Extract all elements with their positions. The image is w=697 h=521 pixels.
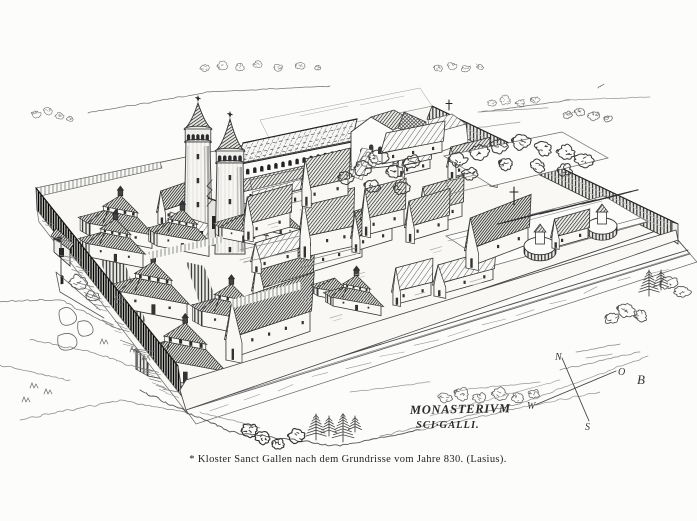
svg-text:O: O: [618, 367, 625, 378]
svg-text:S: S: [585, 422, 590, 433]
svg-text:B: B: [637, 372, 645, 387]
svg-text:* Kloster Sanct Gallen nach de: * Kloster Sanct Gallen nach dem Grundris…: [189, 454, 506, 465]
svg-text:MONASTERIVM: MONASTERIVM: [409, 401, 511, 417]
svg-text:N: N: [554, 352, 563, 363]
svg-text:SCI·GALLI.: SCI·GALLI.: [416, 420, 480, 431]
